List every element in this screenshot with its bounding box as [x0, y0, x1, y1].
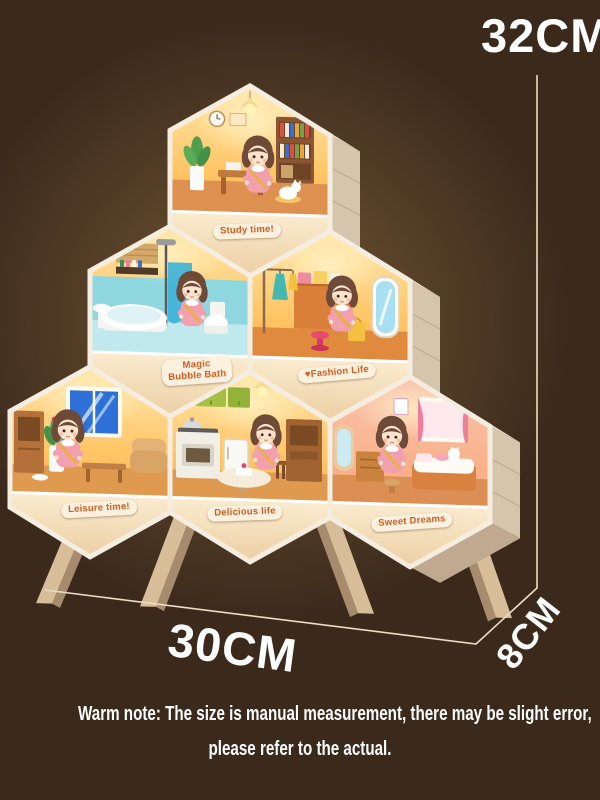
dollhouse-illustration: [0, 0, 600, 800]
tv-cabinet: [14, 410, 44, 473]
room-badge-magic-bubble-bath: Magic Bubble Bath: [161, 356, 233, 387]
standing-mirror: [372, 277, 399, 338]
bookshelf: [276, 117, 314, 184]
warm-note: Warm note: The size is manual measuremen…: [0, 697, 600, 767]
wall-clock: [210, 111, 225, 126]
height-dimension-label: 32CM: [481, 12, 600, 59]
room-badge-delicious-life: Delicious life: [207, 504, 283, 522]
girl-doll: [176, 271, 207, 327]
girl-doll: [250, 414, 281, 470]
module-side-panel: [490, 426, 520, 538]
picture-frame: [394, 398, 408, 414]
wall-poster: [230, 113, 246, 126]
girl-doll: [326, 275, 358, 332]
warm-note-line-2: please refer to the actual.: [78, 732, 522, 767]
kitchen-hutch: [286, 419, 322, 482]
module-side-panel: [330, 135, 360, 247]
product-photo-stage: 32CM 30CM 8CM Study time! Magic Bubble B…: [0, 0, 600, 800]
sofa: [130, 438, 168, 473]
warm-note-line-1: Warm note: The size is manual measuremen…: [78, 697, 522, 732]
girl-doll: [376, 415, 408, 473]
room-badge-study-time: Study time!: [213, 222, 281, 239]
girl-doll: [51, 409, 84, 468]
module-side-panel: [410, 281, 440, 393]
vanity-mirror: [334, 424, 354, 471]
girl-doll: [242, 135, 274, 193]
